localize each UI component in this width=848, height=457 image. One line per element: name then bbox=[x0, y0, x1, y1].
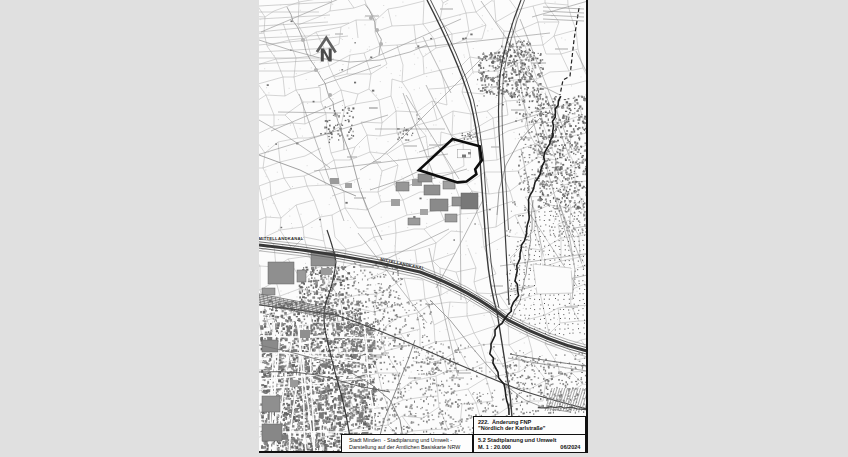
svg-text:MITTELLANDKANAL: MITTELLANDKANAL bbox=[259, 236, 304, 241]
